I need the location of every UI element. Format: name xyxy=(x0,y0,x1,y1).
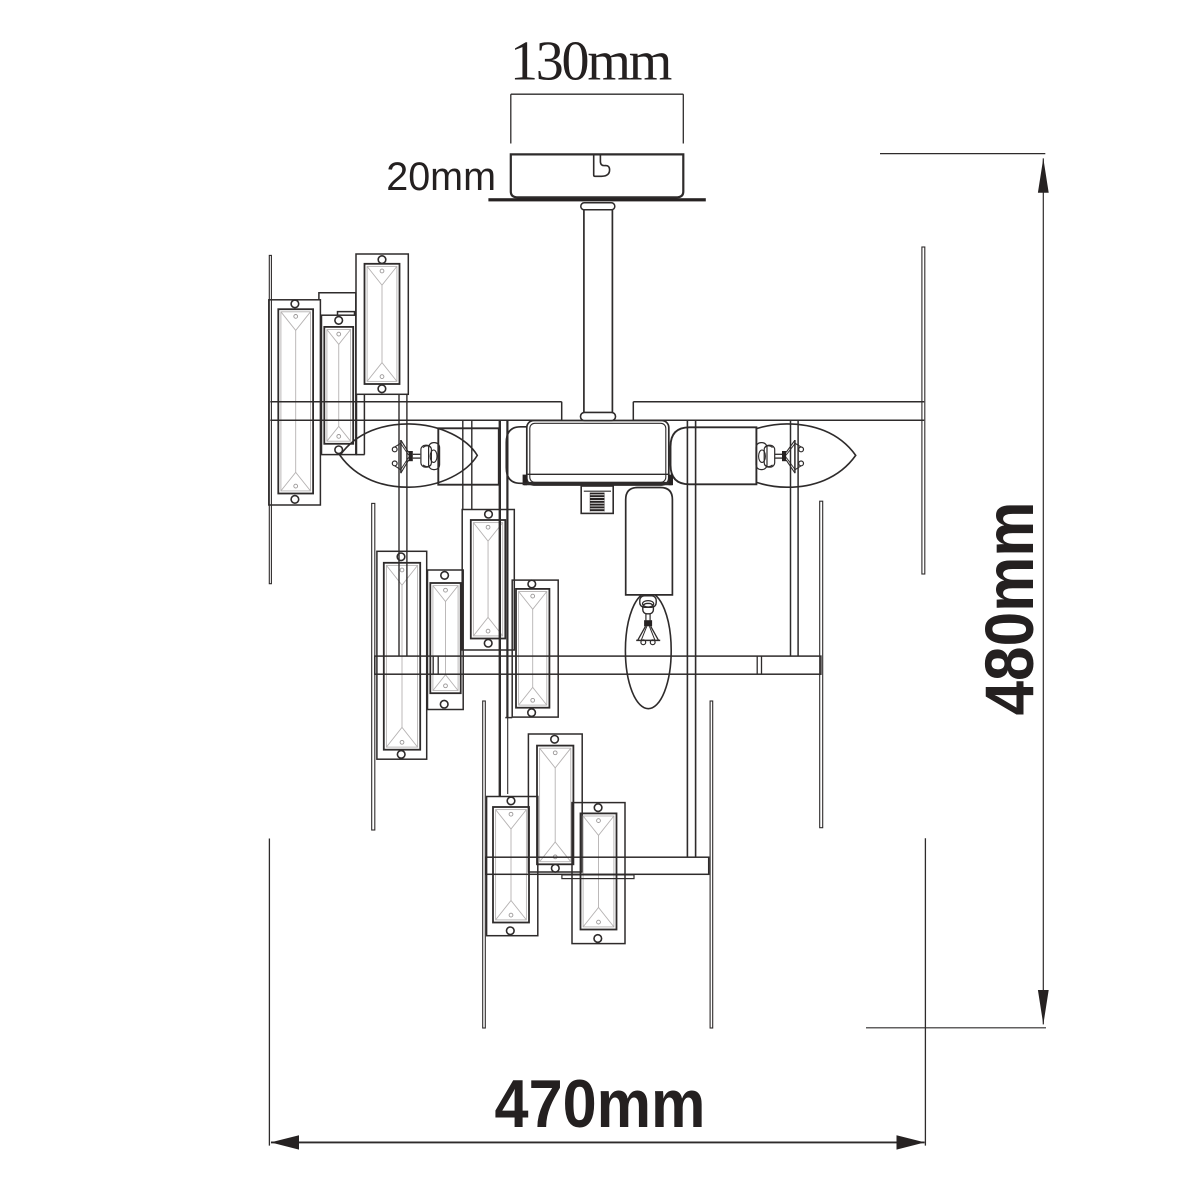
svg-text:130mm: 130mm xyxy=(510,31,672,93)
svg-text:20mm: 20mm xyxy=(386,155,496,199)
svg-text:470mm: 470mm xyxy=(495,1065,706,1142)
svg-text:480mm: 480mm xyxy=(971,501,1048,715)
